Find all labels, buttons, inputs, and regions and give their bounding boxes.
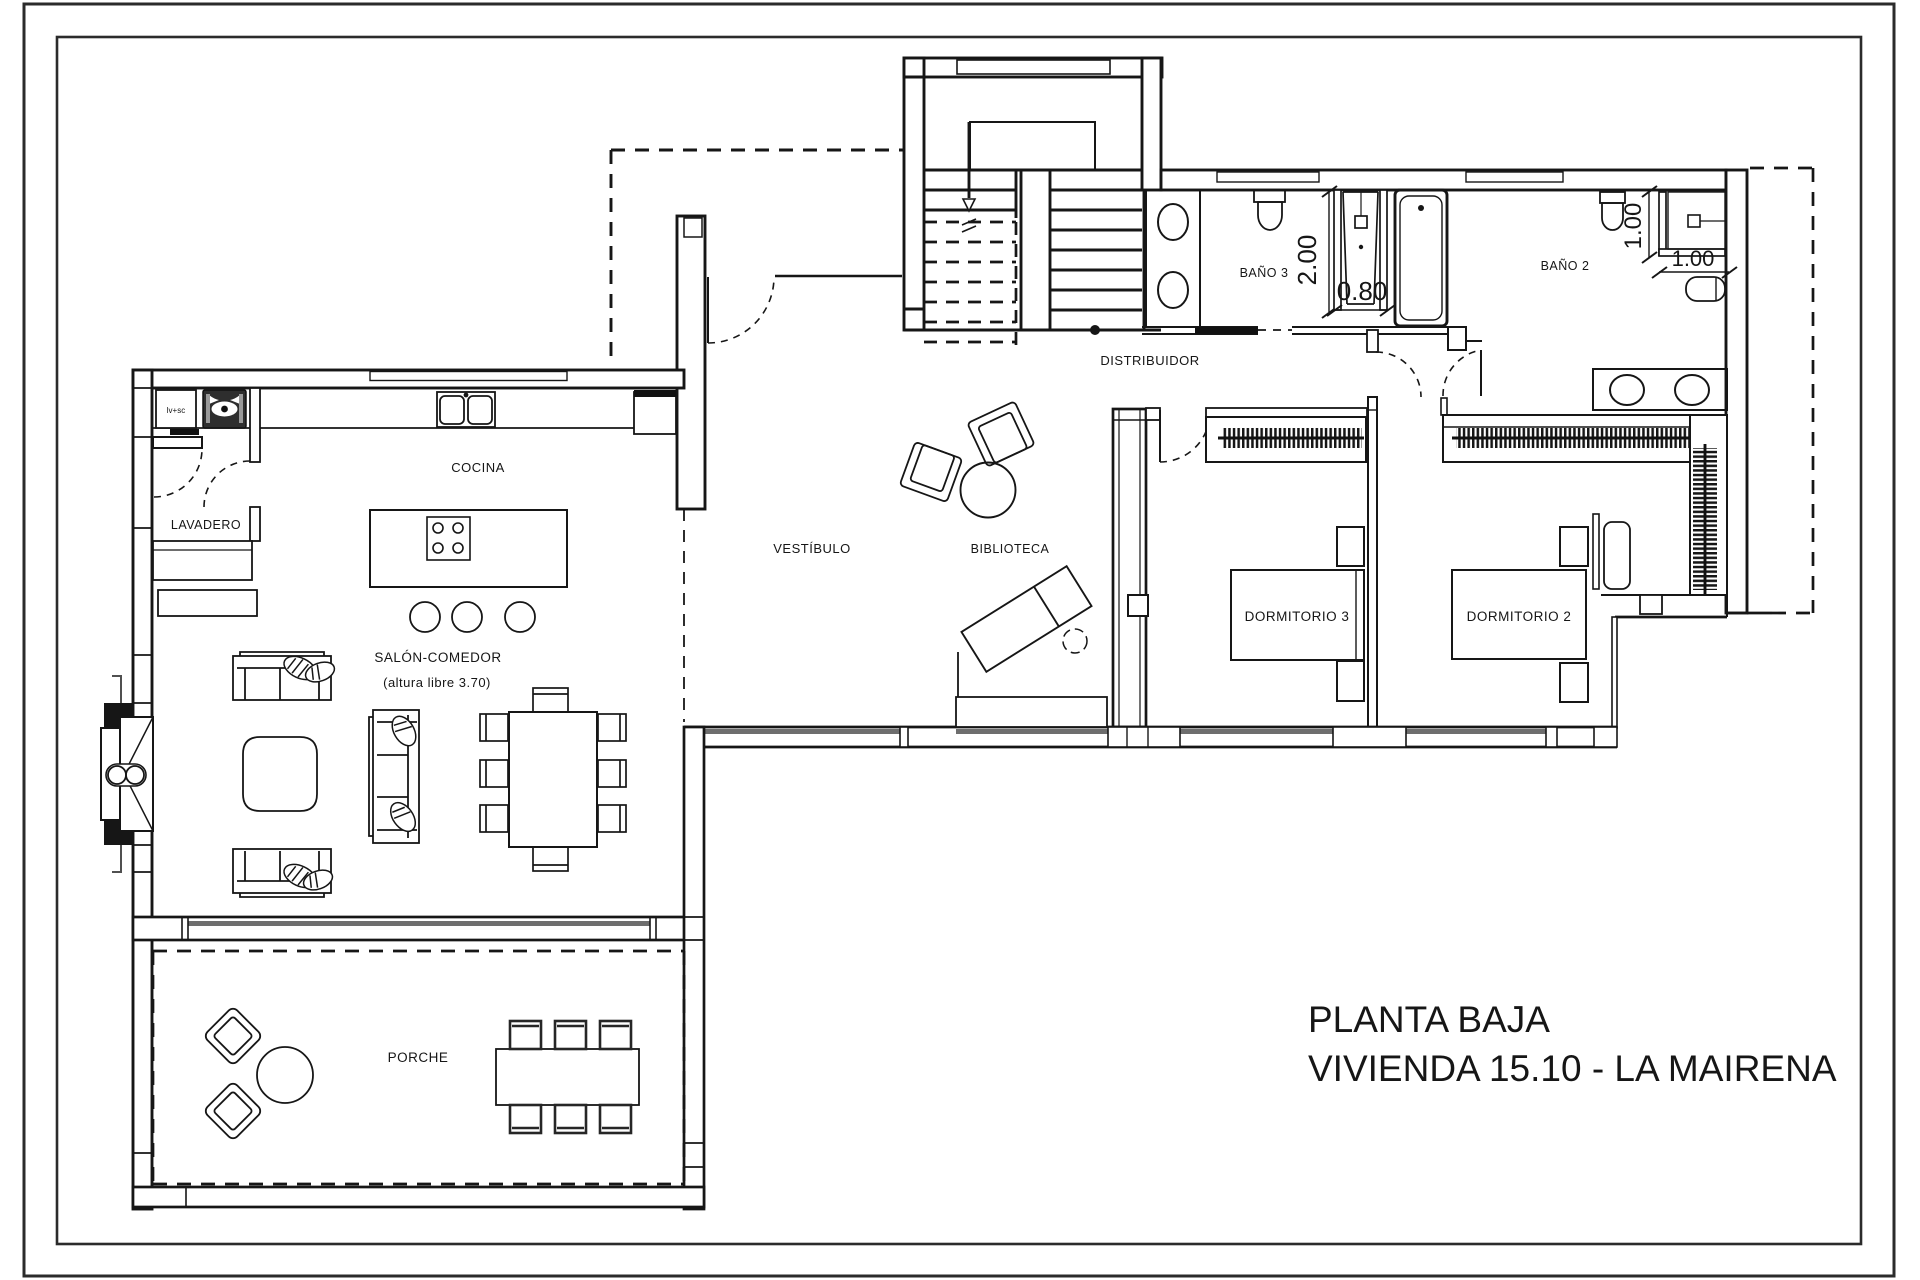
svg-text:PORCHE: PORCHE xyxy=(388,1050,449,1065)
svg-text:BAÑO 3: BAÑO 3 xyxy=(1240,266,1289,280)
svg-text:BIBLIOTECA: BIBLIOTECA xyxy=(971,542,1050,556)
svg-text:LAVADERO: LAVADERO xyxy=(171,518,241,532)
svg-text:1.00: 1.00 xyxy=(1672,246,1715,271)
svg-text:SALÓN-COMEDOR: SALÓN-COMEDOR xyxy=(374,650,501,665)
svg-text:2.00: 2.00 xyxy=(1292,235,1322,286)
svg-text:PLANTA BAJA: PLANTA BAJA xyxy=(1308,999,1550,1040)
svg-text:lv+sc: lv+sc xyxy=(167,406,185,415)
svg-text:(altura libre 3.70): (altura libre 3.70) xyxy=(383,675,491,690)
svg-text:COCINA: COCINA xyxy=(451,460,505,475)
svg-text:VIVIENDA 15.10 - LA MAIRENA: VIVIENDA 15.10 - LA MAIRENA xyxy=(1308,1048,1837,1089)
svg-text:1.00: 1.00 xyxy=(1620,203,1647,250)
svg-text:0.80: 0.80 xyxy=(1337,276,1388,306)
svg-text:BAÑO 2: BAÑO 2 xyxy=(1541,259,1590,273)
svg-text:DISTRIBUIDOR: DISTRIBUIDOR xyxy=(1100,353,1199,368)
svg-text:VESTÍBULO: VESTÍBULO xyxy=(773,541,850,556)
svg-text:DORMITORIO 3: DORMITORIO 3 xyxy=(1245,609,1350,624)
svg-text:DORMITORIO 2: DORMITORIO 2 xyxy=(1467,609,1572,624)
